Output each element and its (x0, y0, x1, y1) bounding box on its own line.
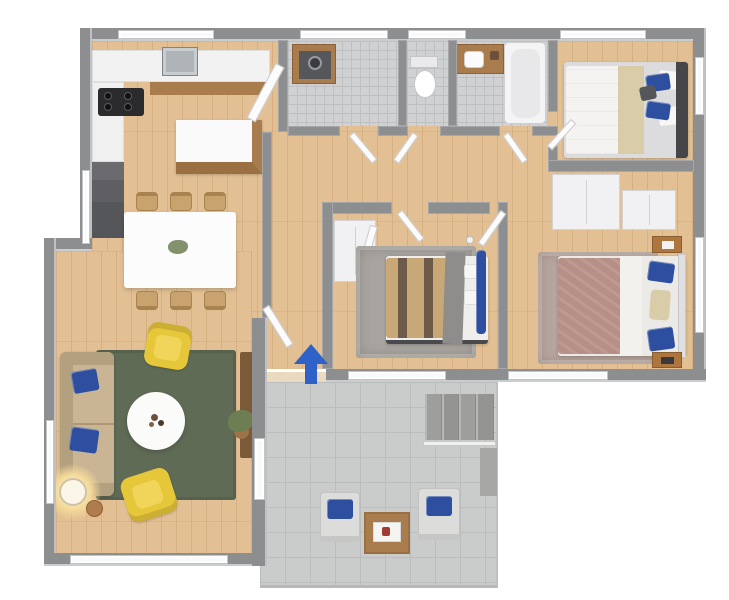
window-living-bottom (70, 555, 228, 564)
bed-1-throw-beige (618, 66, 644, 154)
stair-side-wall (480, 448, 497, 496)
floor-plan-canvas (0, 0, 729, 600)
burner (124, 103, 132, 111)
coffee-table-decor (149, 422, 154, 427)
window-kitchen-left (82, 170, 90, 244)
bed-3-pillow-beige (649, 289, 671, 320)
dining-chair (136, 291, 158, 310)
stairs-railing (423, 441, 496, 446)
arrow-head (294, 344, 328, 364)
kitchen-sink (162, 47, 198, 76)
oven-fridge-column (92, 162, 124, 238)
bedroom2-bedroom3-wall (498, 202, 508, 369)
window-bedroom1-right (695, 57, 704, 115)
armchair-seat-cushion (131, 479, 165, 510)
nightstand-item-dark (661, 357, 674, 364)
bathtub-basin (511, 49, 540, 118)
patio-step (425, 394, 442, 440)
kitchen-island (176, 120, 262, 174)
cooktop (98, 88, 144, 116)
bedroom3-wardrobe-left (552, 174, 620, 230)
window-bedroom3-bottom (508, 371, 608, 380)
burner (104, 92, 112, 100)
sofa-armrest-top (73, 352, 114, 365)
interior-wall-wc-bath (448, 40, 457, 126)
window-bedroom3-right (695, 237, 704, 333)
nightstand-item (662, 241, 674, 249)
corridor-top-wall-c (440, 126, 500, 136)
toilet-bowl (414, 70, 436, 98)
corridor-top-wall-b (378, 126, 408, 136)
bed-2-stripe (424, 258, 433, 338)
bathtub (504, 42, 546, 124)
kitchen-counter-front (150, 82, 270, 95)
armchair-yellow-top (143, 321, 194, 372)
window-living-left (46, 420, 54, 504)
burner (124, 92, 132, 100)
bed-1-pillow-blue (645, 100, 671, 120)
interior-wall-bath-bedroom1-a (548, 40, 558, 112)
bed-2-blanket-gray (442, 252, 465, 345)
bedroom3-wardrobe-right (622, 190, 676, 230)
toilet-tank (410, 56, 438, 68)
bed-3-pillow-blue (647, 326, 676, 351)
patio-chair-right (418, 488, 460, 540)
window-bedroom2-bottom (348, 371, 446, 380)
dining-chair (204, 192, 226, 211)
nightstand-top (652, 236, 682, 253)
sofa-seat-seam (73, 423, 114, 425)
interior-wall-utility-wc (398, 40, 407, 126)
vanity-items (490, 51, 499, 60)
coffee-table (127, 392, 185, 450)
pendant-lamp (466, 236, 474, 244)
bed-1-pillow-dark (639, 84, 658, 101)
dining-chair (204, 291, 226, 310)
armchair-seat-cushion (153, 334, 183, 362)
burner (104, 103, 112, 111)
arrow-stem (305, 363, 317, 384)
bed-2-throw-blue (476, 250, 486, 334)
sofa-pillow-blue-1 (70, 368, 99, 394)
patio-step (442, 394, 459, 440)
interior-wall-dining-hall (262, 132, 272, 318)
entrance-arrow-icon (294, 344, 328, 386)
interior-wall-kitchen-utility (278, 40, 288, 132)
coffee-table-decor (158, 420, 164, 426)
washer-door (308, 56, 322, 70)
nightstand-bottom (652, 352, 682, 368)
coffee-table-decor (151, 414, 158, 421)
bed-3-pillow-blue (647, 260, 676, 283)
vanity-sink (464, 51, 484, 68)
corridor-top-wall-a (288, 126, 340, 136)
bed-3 (558, 256, 686, 356)
patio-chair-cushion (426, 496, 452, 516)
patio-chair-cushion (327, 499, 353, 519)
bed-2-stripe (398, 258, 407, 338)
bed-2 (386, 256, 488, 344)
exterior-wall-left-wing (44, 238, 56, 566)
bed-3-duvet-mauve (558, 258, 622, 354)
floor-lamp (59, 478, 87, 506)
window-wc-bath-top (408, 30, 466, 39)
bed-1 (564, 62, 688, 158)
bathroom-vanity (456, 44, 504, 74)
patio-step (459, 394, 476, 440)
washing-machine (292, 44, 336, 84)
dining-chair (170, 192, 192, 211)
side-table (86, 500, 103, 517)
patio-chair-left (320, 492, 360, 542)
window-kitchen-top (118, 30, 214, 39)
bed-3-blanket-white (620, 256, 642, 356)
bedroom3-top-wall (548, 160, 694, 172)
dining-chair (136, 192, 158, 211)
corridor-top-wall-d (532, 126, 558, 136)
window-bedroom1-top (560, 30, 646, 39)
bed-1-headboard (676, 62, 688, 158)
patio-step (476, 394, 494, 440)
dining-chair (170, 291, 192, 310)
window-utility-top (300, 30, 388, 39)
patio-door-living (254, 438, 265, 500)
corridor-bottom-wall-b (428, 202, 490, 214)
patio-table (364, 512, 410, 554)
bed-2-duvet-tan (386, 258, 448, 338)
bed-3-headboard (678, 254, 686, 358)
patio-table-decor (382, 527, 390, 536)
sofa-pillow-blue-2 (68, 426, 99, 454)
